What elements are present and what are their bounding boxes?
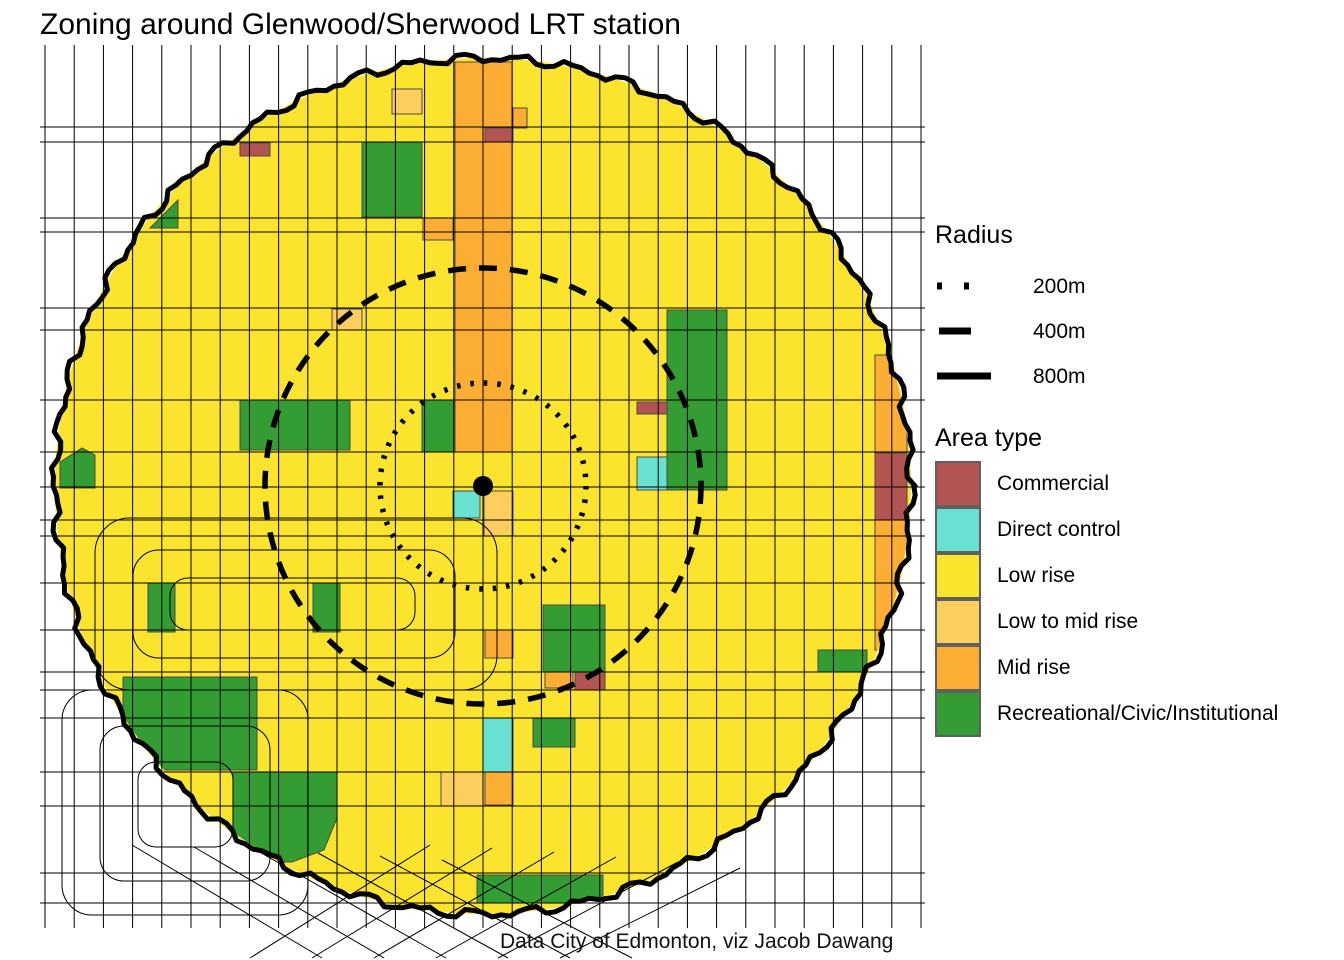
area-type-legend-label: Mid rise	[997, 656, 1071, 680]
area-type-legend-items: CommercialDirect controlLow riseLow to m…	[935, 461, 1340, 737]
green-zone-patch	[543, 605, 605, 672]
area-type-legend-item: Direct control	[935, 507, 1340, 553]
low_mid-zone-patch	[441, 772, 485, 806]
commercial-color-swatch	[935, 461, 981, 507]
commercial-zone-patch	[637, 402, 667, 414]
green-zone-patch	[123, 677, 257, 770]
green-zone-patch	[362, 142, 422, 217]
radius-legend-item: 400m	[935, 309, 1340, 354]
legend-panel: Radius 200m400m800m Area type Commercial…	[935, 220, 1340, 737]
data-credit-caption: Data City of Edmonton, viz Jacob Dawang	[500, 930, 893, 954]
mid-zone-patch	[485, 630, 513, 658]
green-zone-patch	[240, 400, 350, 450]
dotted-line-swatch-icon	[935, 278, 993, 296]
area-type-legend-label: Recreational/Civic/Institutional	[997, 702, 1278, 726]
mid-color-swatch	[935, 645, 981, 691]
radius-legend-heading: Radius	[935, 220, 1340, 250]
green-color-swatch	[935, 691, 981, 737]
mid-zone-patch	[513, 108, 527, 128]
area-type-legend-label: Low to mid rise	[997, 610, 1138, 634]
radius-legend-items: 200m400m800m	[935, 264, 1340, 399]
radius-legend-item: 800m	[935, 354, 1340, 399]
mid-zone-patch	[423, 218, 453, 240]
direct-zone-patch	[637, 457, 667, 490]
commercial-zone-patch	[240, 143, 270, 156]
radius-legend-label: 800m	[1033, 365, 1086, 389]
area-type-legend-item: Commercial	[935, 461, 1340, 507]
low_mid-color-swatch	[935, 599, 981, 645]
area-type-legend-item: Low rise	[935, 553, 1340, 599]
area-type-legend-item: Low to mid rise	[935, 599, 1340, 645]
dashed-line-swatch-icon	[935, 323, 993, 341]
mid-zone-patch	[485, 772, 513, 805]
lrt-station-dot	[473, 476, 493, 496]
area-type-legend-label: Commercial	[997, 472, 1109, 496]
area-type-legend-item: Recreational/Civic/Institutional	[935, 691, 1340, 737]
radius-legend-label: 200m	[1033, 275, 1086, 299]
green-zone-patch	[533, 718, 575, 747]
solid-line-swatch-icon	[935, 368, 993, 386]
direct-zone-patch	[453, 491, 480, 518]
station-layer	[473, 476, 493, 496]
direct-zone-patch	[483, 718, 513, 772]
area-type-legend-label: Low rise	[997, 564, 1075, 588]
radius-legend-label: 400m	[1033, 320, 1086, 344]
area-type-legend-heading: Area type	[935, 423, 1340, 453]
low_rise-color-swatch	[935, 553, 981, 599]
radius-legend-item: 200m	[935, 264, 1340, 309]
area-type-legend-label: Direct control	[997, 518, 1121, 542]
green-zone-patch	[818, 650, 867, 672]
low_mid-zone-patch	[392, 89, 422, 114]
area-type-legend-item: Mid rise	[935, 645, 1340, 691]
direct-color-swatch	[935, 507, 981, 553]
commercial-zone-patch	[485, 128, 513, 142]
